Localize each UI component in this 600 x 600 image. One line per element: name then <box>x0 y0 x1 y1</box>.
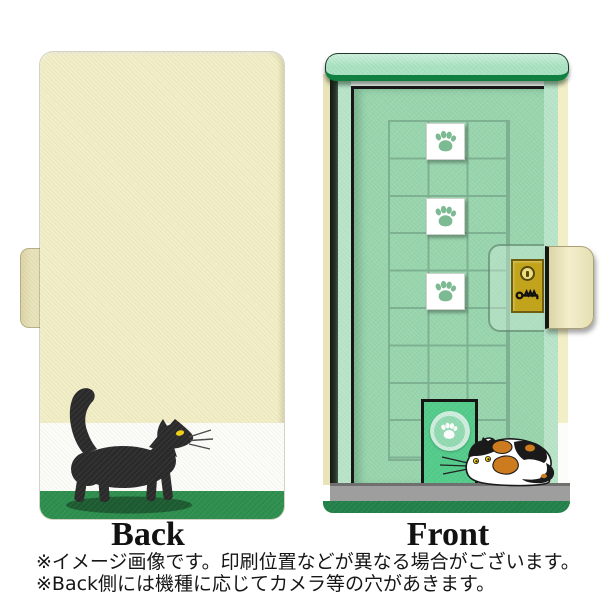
cat-head <box>157 419 193 449</box>
phone-case-back <box>40 52 284 519</box>
paw-print-tile-1 <box>426 123 465 160</box>
paw-print-icon <box>434 130 458 153</box>
front-base-strip <box>323 501 570 513</box>
paw-print-icon <box>434 280 458 303</box>
calico-whiskers <box>440 457 468 474</box>
keyhole-icon <box>520 266 535 281</box>
cat-tail <box>70 388 97 455</box>
product-photo: Back Front ※イメージ画像です。印刷位置などが異なる場合がございます。… <box>0 0 600 600</box>
cat-shadow <box>66 497 192 514</box>
calico-cat-illustration <box>438 436 560 488</box>
disclaimer-line-1: ※イメージ画像です。印刷位置などが異なる場合がございます。 <box>36 552 596 574</box>
back-view-label: Back <box>48 517 248 553</box>
black-cat-illustration <box>63 381 213 517</box>
door-awning <box>325 53 569 81</box>
lock-plate <box>511 259 544 313</box>
door-jamb-left <box>338 79 351 483</box>
front-view-label: Front <box>348 517 548 553</box>
front-spine-edge <box>330 71 338 505</box>
closure-strap-wrap <box>545 246 594 329</box>
paw-print-tile-2 <box>426 198 465 235</box>
paw-print-tile-3 <box>426 273 465 310</box>
paw-print-icon <box>434 205 458 228</box>
disclaimer-caption: ※イメージ画像です。印刷位置などが異なる場合がございます。 ※Back側には機種… <box>36 552 596 595</box>
disclaimer-line-2: ※Back側には機種に応じてカメラ等の穴があきます。 <box>36 574 596 596</box>
key-icon <box>515 287 540 302</box>
